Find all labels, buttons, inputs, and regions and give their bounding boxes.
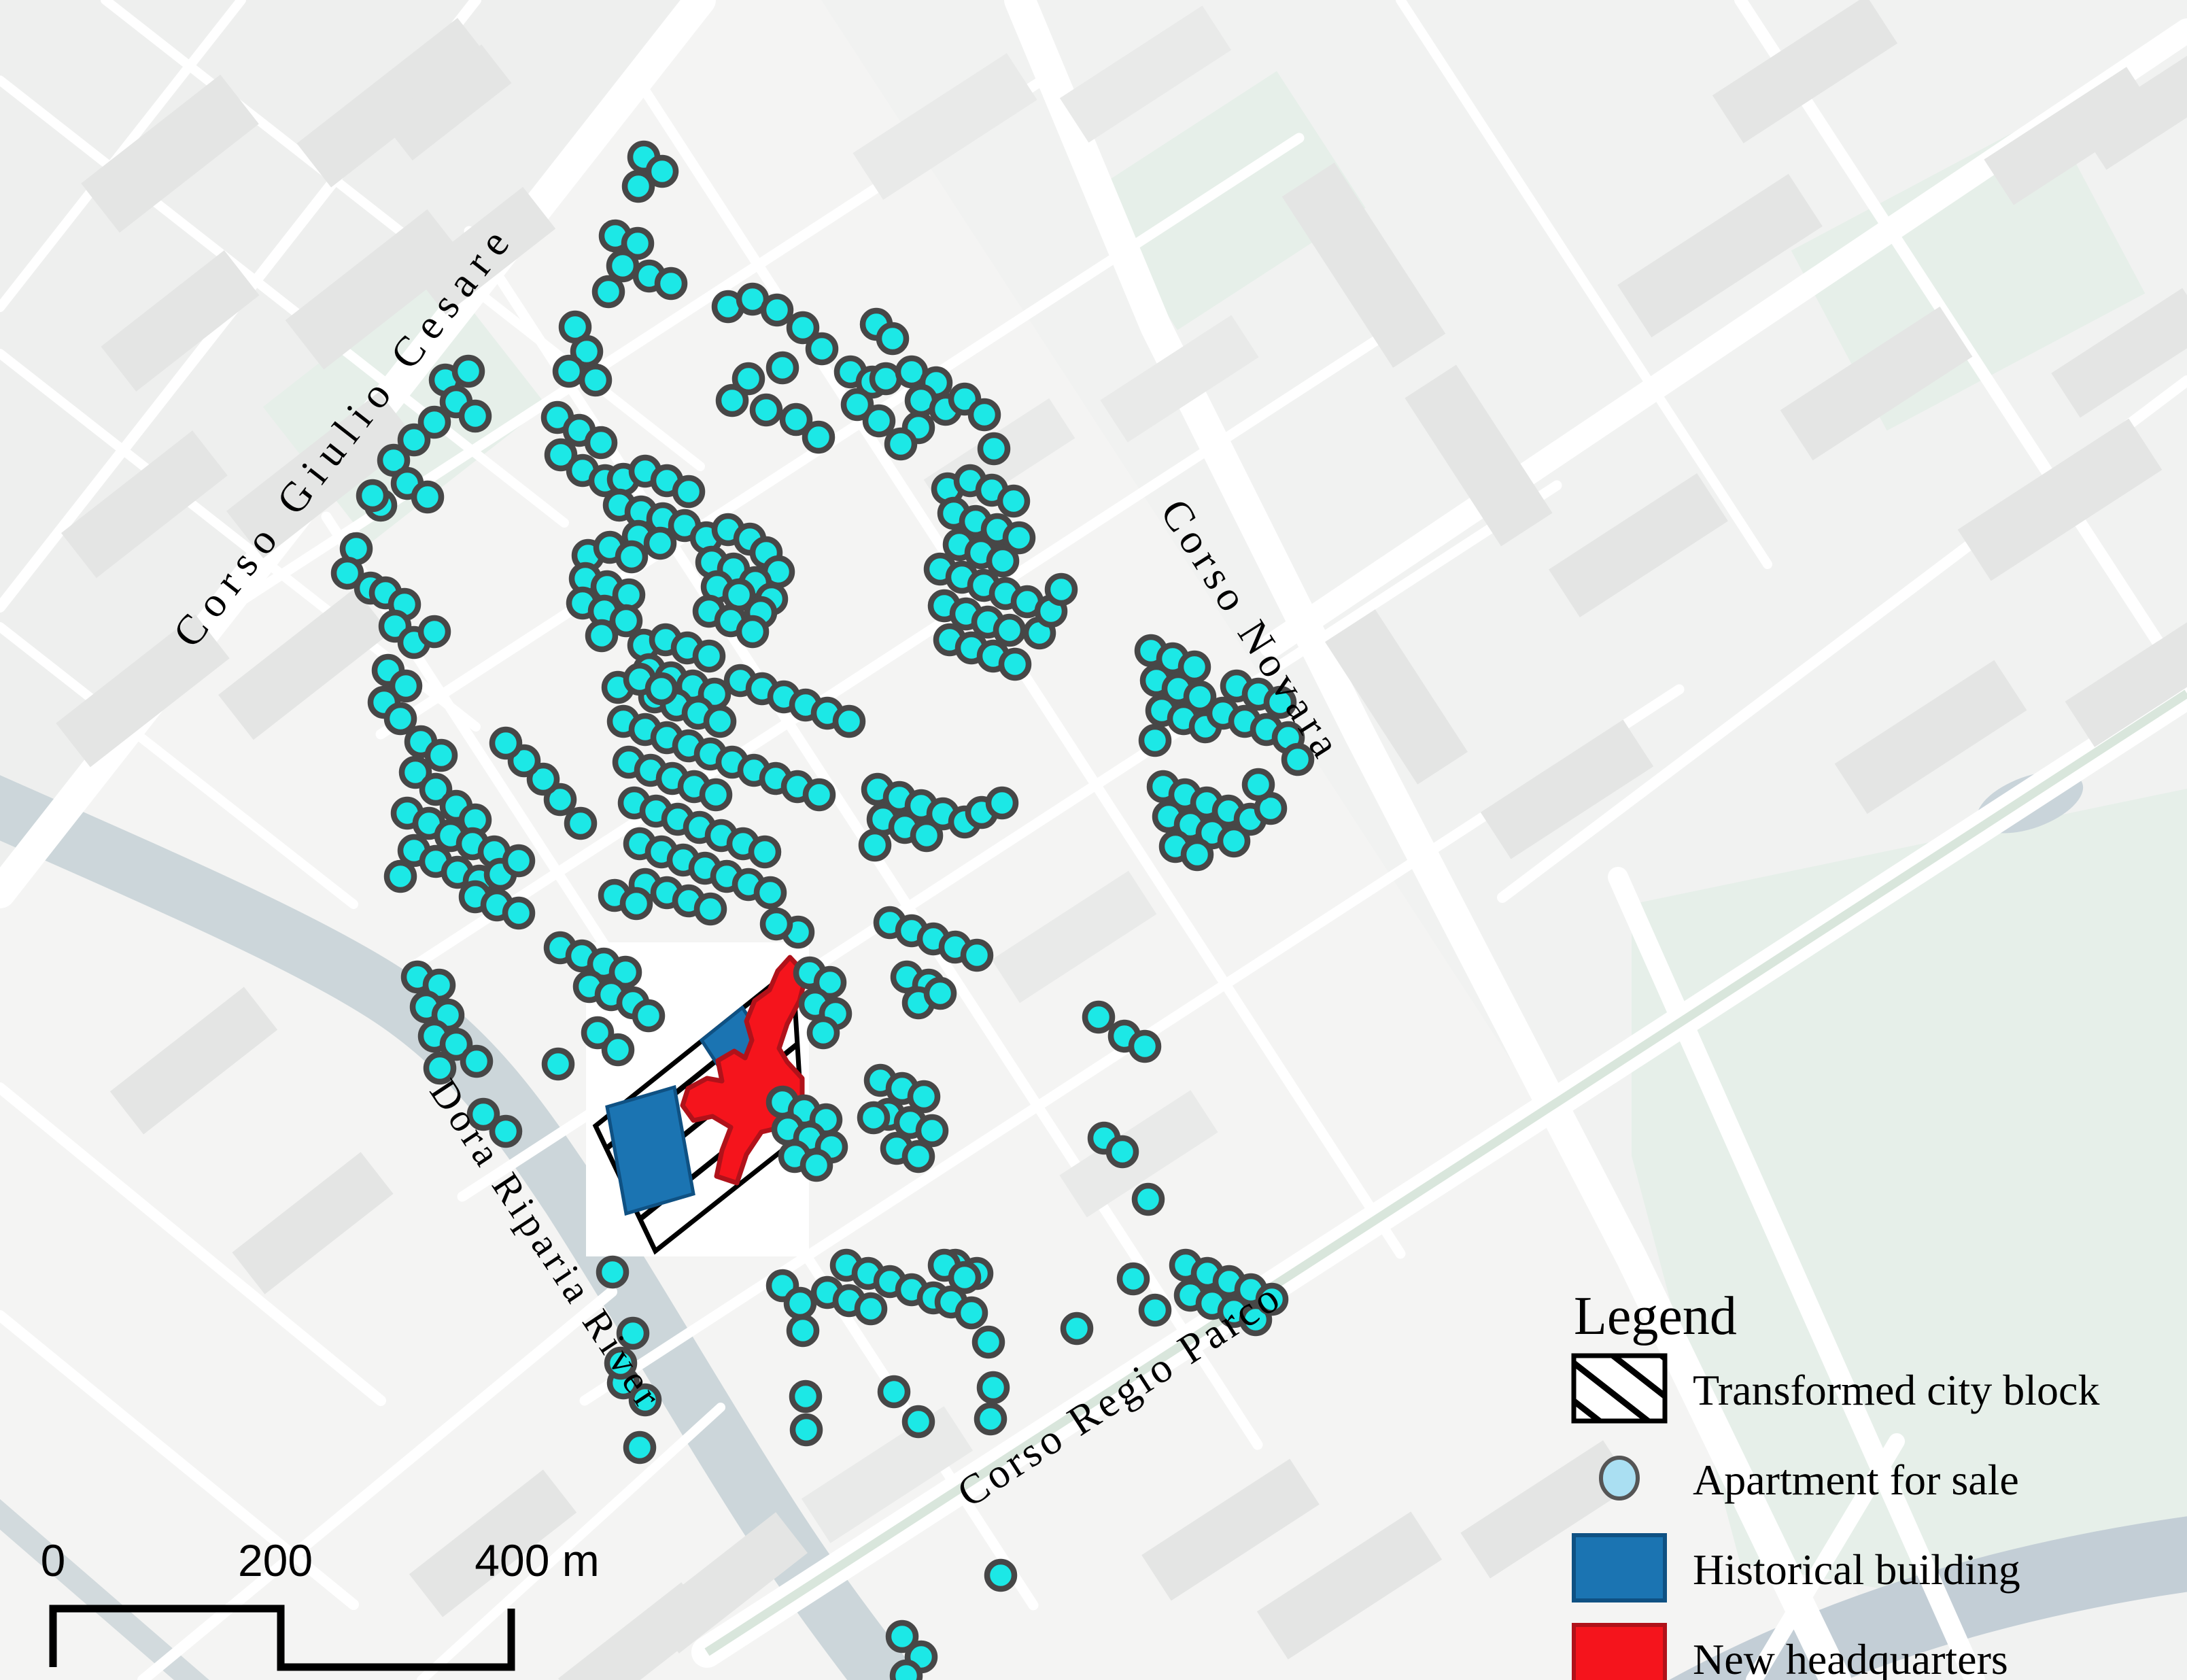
apartment-dot[interactable] <box>893 1662 920 1680</box>
apartment-dot[interactable] <box>604 1036 632 1063</box>
apartment-dot[interactable] <box>879 325 906 352</box>
apartment-dot[interactable] <box>387 863 414 890</box>
map-figure: Corso Giulio Cesare Corso Novara Corso R… <box>0 0 2187 1680</box>
apartment-dot[interactable] <box>635 1002 662 1029</box>
apartment-dot[interactable] <box>387 705 414 732</box>
apartment-dot[interactable] <box>757 879 784 906</box>
apartment-dot[interactable] <box>1184 841 1211 868</box>
apartment-dot[interactable] <box>763 910 790 938</box>
apartment-dot[interactable] <box>996 617 1023 644</box>
apartment-dot[interactable] <box>1000 487 1027 515</box>
apartment-dot[interactable] <box>1085 1004 1112 1031</box>
apartment-dot[interactable] <box>887 430 914 458</box>
apartment-dot[interactable] <box>675 478 702 505</box>
apartment-dot[interactable] <box>958 1299 985 1326</box>
apartment-dot[interactable] <box>913 822 940 849</box>
apartment-dot[interactable] <box>927 980 954 1007</box>
apartment-dot[interactable] <box>872 365 899 392</box>
apartment-dot[interactable] <box>428 742 455 769</box>
apartment-dot[interactable] <box>988 789 1016 817</box>
apartment-dot[interactable] <box>803 1152 830 1179</box>
apartment-dot[interactable] <box>751 838 778 865</box>
apartment-dot[interactable] <box>805 424 832 451</box>
apartment-dot[interactable] <box>1063 1315 1090 1342</box>
apartment-dot[interactable] <box>980 1374 1007 1401</box>
apartment-dot[interactable] <box>987 1562 1014 1589</box>
apartment-dot[interactable] <box>880 1378 908 1405</box>
apartment-dot[interactable] <box>963 942 991 969</box>
apartment-dot[interactable] <box>555 358 583 385</box>
apartment-dot[interactable] <box>492 730 519 757</box>
apartment-dot[interactable] <box>975 1328 1002 1356</box>
apartment-dot[interactable] <box>789 1317 816 1344</box>
apartment-dot[interactable] <box>806 781 833 808</box>
apartment-dot[interactable] <box>359 482 386 509</box>
apartment-dot[interactable] <box>971 401 998 428</box>
apartment-dot[interactable] <box>753 396 780 424</box>
apartment-dot[interactable] <box>1120 1265 1147 1292</box>
legend-item-label: Transformed city block <box>1693 1366 2099 1414</box>
apartment-dot[interactable] <box>810 1019 837 1046</box>
legend-item-transformed-city-block: Transformed city block <box>1574 1356 2099 1421</box>
apartment-dot[interactable] <box>648 675 675 702</box>
apartment-dot[interactable] <box>1001 651 1029 678</box>
legend-item-label: New headquarters <box>1693 1635 2008 1680</box>
apartment-swatch-circle <box>1601 1458 1638 1498</box>
map-canvas: Corso Giulio Cesare Corso Novara Corso R… <box>0 0 2187 1680</box>
apartment-dot[interactable] <box>905 1143 932 1170</box>
apartment-dot[interactable] <box>792 1383 819 1410</box>
apartment-dot[interactable] <box>462 402 489 430</box>
apartment-dot[interactable] <box>625 173 652 200</box>
scale-label-200: 200 <box>238 1535 313 1585</box>
apartment-dot[interactable] <box>861 832 889 859</box>
apartment-dot[interactable] <box>1048 576 1075 603</box>
historical-swatch <box>1574 1535 1665 1600</box>
apartment-dot[interactable] <box>421 618 448 645</box>
apartment-dot[interactable] <box>905 1408 932 1435</box>
apartment-dot[interactable] <box>860 1104 887 1131</box>
apartment-dot[interactable] <box>918 1117 946 1144</box>
apartment-dot[interactable] <box>980 435 1008 462</box>
apartment-dot[interactable] <box>787 1290 814 1317</box>
apartment-dot[interactable] <box>626 1434 653 1461</box>
apartment-dot[interactable] <box>588 622 615 649</box>
apartment-dot[interactable] <box>1141 727 1169 754</box>
apartment-dot[interactable] <box>763 296 791 324</box>
apartment-dot[interactable] <box>769 354 796 381</box>
hatched-swatch <box>1574 1356 1665 1421</box>
apartment-dot[interactable] <box>702 781 729 808</box>
apartment-dot[interactable] <box>567 810 594 837</box>
apartment-dot[interactable] <box>587 429 615 456</box>
apartment-dot[interactable] <box>582 366 609 394</box>
scale-label-400m: 400 m <box>475 1535 599 1585</box>
apartment-dot[interactable] <box>505 847 532 874</box>
apartment-dot[interactable] <box>857 1295 884 1322</box>
apartment-dot[interactable] <box>739 618 766 645</box>
apartment-dot[interactable] <box>697 895 724 923</box>
apartment-dot[interactable] <box>414 483 441 511</box>
legend-item-historical-building: Historical building <box>1574 1535 2020 1600</box>
apartment-dot[interactable] <box>505 899 532 927</box>
apartment-dot[interactable] <box>719 387 746 414</box>
apartment-dot[interactable] <box>1141 1297 1169 1324</box>
apartment-dot[interactable] <box>808 335 836 362</box>
apartment-dot[interactable] <box>706 708 734 735</box>
apartment-dot[interactable] <box>1220 827 1247 855</box>
apartment-dot[interactable] <box>599 1258 626 1286</box>
apartment-dot[interactable] <box>463 1048 490 1075</box>
apartment-dot[interactable] <box>989 547 1016 575</box>
apartment-dot[interactable] <box>793 1416 820 1443</box>
apartment-dot[interactable] <box>1245 771 1272 798</box>
apartment-dot[interactable] <box>865 407 893 434</box>
headquarters-swatch <box>1574 1625 1665 1680</box>
apartment-dot[interactable] <box>977 1405 1004 1433</box>
apartment-dot[interactable] <box>1131 1033 1158 1060</box>
scale-label-0: 0 <box>41 1535 66 1585</box>
apartment-dot[interactable] <box>910 1083 937 1110</box>
apartment-dot[interactable] <box>618 543 645 570</box>
apartment-dot[interactable] <box>695 642 723 670</box>
apartment-dot[interactable] <box>595 278 622 305</box>
apartment-dot[interactable] <box>609 252 636 279</box>
legend-title: Legend <box>1574 1286 1737 1346</box>
apartment-dot[interactable] <box>1109 1138 1136 1165</box>
legend-item-label: Apartment for sale <box>1693 1456 2019 1504</box>
apartment-dot[interactable] <box>647 530 674 557</box>
apartment-dot[interactable] <box>836 708 863 735</box>
apartment-dot[interactable] <box>1135 1186 1162 1213</box>
legend-item-label: Historical building <box>1693 1545 2020 1594</box>
apartment-dot[interactable] <box>657 270 685 297</box>
apartment-dot[interactable] <box>455 358 482 385</box>
apartment-dot[interactable] <box>623 890 650 917</box>
apartment-dot[interactable] <box>545 1050 572 1078</box>
